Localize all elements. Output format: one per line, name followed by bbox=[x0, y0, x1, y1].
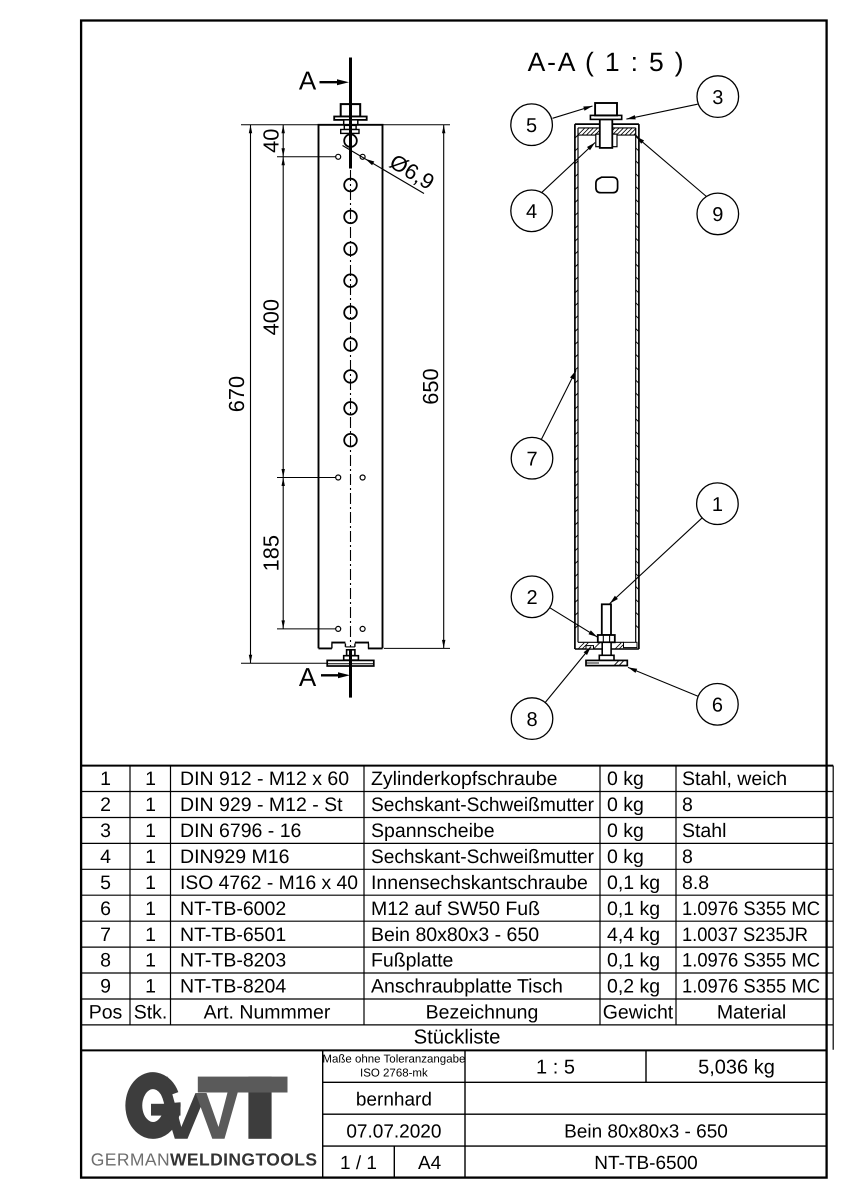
svg-text:Art. Nummmer: Art. Nummmer bbox=[204, 1002, 331, 1024]
svg-text:1: 1 bbox=[145, 768, 156, 790]
svg-text:NT-TB-8204: NT-TB-8204 bbox=[180, 976, 286, 998]
svg-text:8: 8 bbox=[682, 794, 693, 816]
svg-text:Innensechskantschraube: Innensechskantschraube bbox=[371, 872, 588, 894]
svg-text:9: 9 bbox=[100, 976, 111, 998]
svg-text:ISO 4762 - M16 x 40: ISO 4762 - M16 x 40 bbox=[180, 872, 358, 894]
svg-text:Material: Material bbox=[717, 1002, 786, 1024]
svg-text:8: 8 bbox=[526, 709, 537, 731]
svg-text:bernhard: bernhard bbox=[356, 1090, 432, 1111]
svg-text:670: 670 bbox=[224, 376, 249, 412]
svg-text:0,1 kg: 0,1 kg bbox=[607, 898, 660, 920]
svg-text:Bein 80x80x3 - 650: Bein 80x80x3 - 650 bbox=[371, 924, 539, 946]
svg-text:NT-TB-8203: NT-TB-8203 bbox=[180, 950, 286, 972]
svg-text:4: 4 bbox=[526, 201, 537, 223]
svg-text:6: 6 bbox=[712, 695, 723, 717]
svg-text:Zylinderkopfschraube: Zylinderkopfschraube bbox=[371, 768, 557, 790]
svg-text:A: A bbox=[299, 66, 317, 96]
svg-text:Gewicht: Gewicht bbox=[603, 1002, 674, 1024]
svg-text:1: 1 bbox=[100, 768, 111, 790]
svg-text:1 : 5: 1 : 5 bbox=[536, 1057, 575, 1079]
svg-text:3: 3 bbox=[100, 820, 111, 842]
svg-text:Pos: Pos bbox=[89, 1002, 123, 1024]
svg-text:1: 1 bbox=[145, 976, 156, 998]
svg-text:2: 2 bbox=[100, 794, 111, 816]
svg-text:NT-TB-6002: NT-TB-6002 bbox=[180, 898, 286, 920]
svg-text:Stk.: Stk. bbox=[134, 1002, 168, 1024]
svg-text:Sechskant-Schweißmutter: Sechskant-Schweißmutter bbox=[371, 794, 594, 816]
svg-text:A4: A4 bbox=[418, 1153, 442, 1174]
svg-text:8.8: 8.8 bbox=[682, 872, 709, 894]
svg-text:A-A ( 1 : 5 ): A-A ( 1 : 5 ) bbox=[528, 47, 684, 77]
svg-text:Stückliste: Stückliste bbox=[414, 1027, 501, 1049]
svg-text:8: 8 bbox=[682, 846, 693, 868]
svg-text:1: 1 bbox=[145, 898, 156, 920]
svg-text:0 kg: 0 kg bbox=[607, 794, 644, 816]
svg-text:DIN929 M16: DIN929 M16 bbox=[180, 846, 289, 868]
svg-text:Bein 80x80x3 - 650: Bein 80x80x3 - 650 bbox=[564, 1122, 728, 1143]
svg-text:1: 1 bbox=[145, 794, 156, 816]
svg-text:0,2 kg: 0,2 kg bbox=[607, 976, 660, 998]
svg-text:4: 4 bbox=[100, 846, 111, 868]
svg-text:Stahl, weich: Stahl, weich bbox=[682, 768, 787, 790]
svg-text:4,4 kg: 4,4 kg bbox=[607, 924, 660, 946]
svg-text:GERMANWELDINGTOOLS: GERMANWELDINGTOOLS bbox=[91, 1150, 318, 1170]
svg-text:DIN 912 - M12 x 60: DIN 912 - M12 x 60 bbox=[180, 768, 349, 790]
svg-text:1.0976 S355 MC: 1.0976 S355 MC bbox=[682, 950, 820, 972]
svg-text:Fußplatte: Fußplatte bbox=[371, 950, 453, 972]
svg-text:8: 8 bbox=[100, 950, 111, 972]
svg-text:5: 5 bbox=[100, 872, 111, 894]
svg-text:1.0037 S235JR: 1.0037 S235JR bbox=[682, 924, 808, 946]
svg-text:5: 5 bbox=[526, 115, 537, 137]
svg-text:1: 1 bbox=[145, 950, 156, 972]
svg-text:Spannscheibe: Spannscheibe bbox=[371, 820, 495, 842]
svg-text:DIN 929 - M12 - St: DIN 929 - M12 - St bbox=[180, 794, 343, 816]
svg-text:NT-TB-6500: NT-TB-6500 bbox=[594, 1153, 697, 1174]
svg-text:ISO 2768-mk: ISO 2768-mk bbox=[360, 1068, 428, 1080]
svg-text:1.0976 S355 MC: 1.0976 S355 MC bbox=[682, 898, 820, 920]
svg-text:Sechskant-Schweißmutter: Sechskant-Schweißmutter bbox=[371, 846, 594, 868]
svg-text:DIN 6796 - 16: DIN 6796 - 16 bbox=[180, 820, 301, 842]
svg-text:Stahl: Stahl bbox=[682, 820, 726, 842]
svg-text:0,1 kg: 0,1 kg bbox=[607, 872, 660, 894]
svg-text:2: 2 bbox=[526, 587, 537, 609]
svg-text:1: 1 bbox=[712, 494, 723, 516]
svg-text:0 kg: 0 kg bbox=[607, 846, 644, 868]
svg-text:Anschraubplatte Tisch: Anschraubplatte Tisch bbox=[371, 976, 563, 998]
svg-text:07.07.2020: 07.07.2020 bbox=[346, 1122, 441, 1143]
svg-text:Bezeichnung: Bezeichnung bbox=[426, 1002, 539, 1024]
svg-text:40: 40 bbox=[259, 129, 284, 153]
svg-text:6: 6 bbox=[100, 898, 111, 920]
svg-text:0,1 kg: 0,1 kg bbox=[607, 950, 660, 972]
svg-text:Maße ohne Toleranzangabe: Maße ohne Toleranzangabe bbox=[322, 1054, 465, 1066]
svg-text:1: 1 bbox=[145, 872, 156, 894]
svg-text:1 / 1: 1 / 1 bbox=[340, 1153, 377, 1174]
svg-text:1: 1 bbox=[145, 820, 156, 842]
svg-text:650: 650 bbox=[418, 368, 443, 404]
svg-text:185: 185 bbox=[259, 535, 284, 571]
svg-text:1.0976 S355 MC: 1.0976 S355 MC bbox=[682, 976, 820, 998]
svg-text:1: 1 bbox=[145, 924, 156, 946]
svg-text:400: 400 bbox=[259, 299, 284, 335]
svg-text:7: 7 bbox=[100, 924, 111, 946]
svg-text:5,036 kg: 5,036 kg bbox=[698, 1057, 775, 1079]
svg-text:A: A bbox=[299, 662, 317, 692]
svg-text:7: 7 bbox=[526, 448, 537, 470]
svg-text:3: 3 bbox=[712, 87, 723, 109]
svg-text:1: 1 bbox=[145, 846, 156, 868]
svg-text:0 kg: 0 kg bbox=[607, 768, 644, 790]
svg-text:9: 9 bbox=[712, 204, 723, 226]
svg-text:NT-TB-6501: NT-TB-6501 bbox=[180, 924, 286, 946]
svg-text:M12 auf SW50 Fuß: M12 auf SW50 Fuß bbox=[371, 898, 540, 920]
svg-text:0 kg: 0 kg bbox=[607, 820, 644, 842]
